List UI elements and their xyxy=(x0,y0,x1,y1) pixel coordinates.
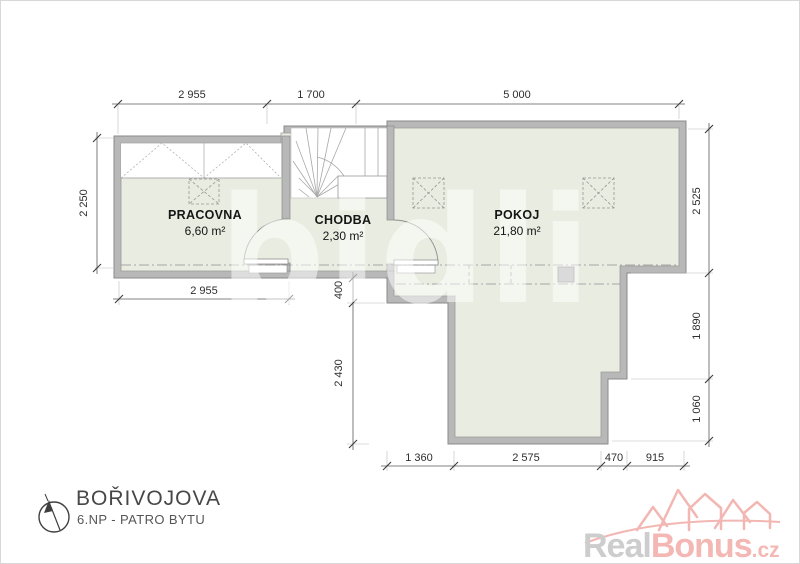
stair-landing xyxy=(338,176,387,198)
room-label-pokoj: POKOJ 21,80 m² xyxy=(493,208,540,239)
brand-part-real: Real xyxy=(583,527,651,564)
floor-plan-canvas: bidli PRACOVNA 6,60 m² CHODBA 2,30 m² PO… xyxy=(0,0,800,564)
plan-title: BOŘIVOJOVA xyxy=(76,487,221,511)
dim-label-bottom-3: 470 xyxy=(605,452,623,464)
dim-label-bottom-1: 1 360 xyxy=(405,452,433,464)
room-name: CHODBA xyxy=(315,213,372,229)
brand-part-cz: .cz xyxy=(752,539,780,562)
north-arrow-icon xyxy=(39,494,69,532)
room-area: 6,60 m² xyxy=(168,224,242,239)
room-label-chodba: CHODBA 2,30 m² xyxy=(315,213,372,244)
brand-part-bonus: Bonus xyxy=(651,527,752,564)
room-name: POKOJ xyxy=(493,208,540,224)
chimney-block xyxy=(558,267,574,282)
dim-label-step: 400 xyxy=(333,281,345,299)
pracovna-roof-strip xyxy=(121,143,281,178)
floor-plan-drawing xyxy=(1,1,800,564)
logo-houses-icon xyxy=(637,490,770,530)
dim-label-top-left: 2 955 xyxy=(178,89,206,101)
room-area: 2,30 m² xyxy=(315,229,372,244)
staircase xyxy=(291,128,389,198)
dim-label-extension-left: 2 430 xyxy=(333,359,345,387)
dim-label-top-right: 5 000 xyxy=(503,89,531,101)
room-label-pracovna: PRACOVNA 6,60 m² xyxy=(168,208,242,239)
dim-label-right-bottom: 1 060 xyxy=(691,395,703,423)
plan-subtitle: 6.NP - PATRO BYTU xyxy=(77,512,205,527)
brand-wordmark: RealBonus.cz xyxy=(583,527,780,564)
dim-label-bottom-2: 2 575 xyxy=(512,452,540,464)
room-name: PRACOVNA xyxy=(168,208,242,224)
dim-label-bottom-4: 915 xyxy=(646,452,664,464)
room-area: 21,80 m² xyxy=(493,224,540,239)
dim-label-below-pracovna: 2 955 xyxy=(190,285,218,297)
dim-label-left: 2 250 xyxy=(78,189,90,217)
dim-label-right-mid: 1 890 xyxy=(691,312,703,340)
dim-label-right-top: 2 525 xyxy=(691,187,703,215)
dim-label-top-mid: 1 700 xyxy=(297,89,325,101)
